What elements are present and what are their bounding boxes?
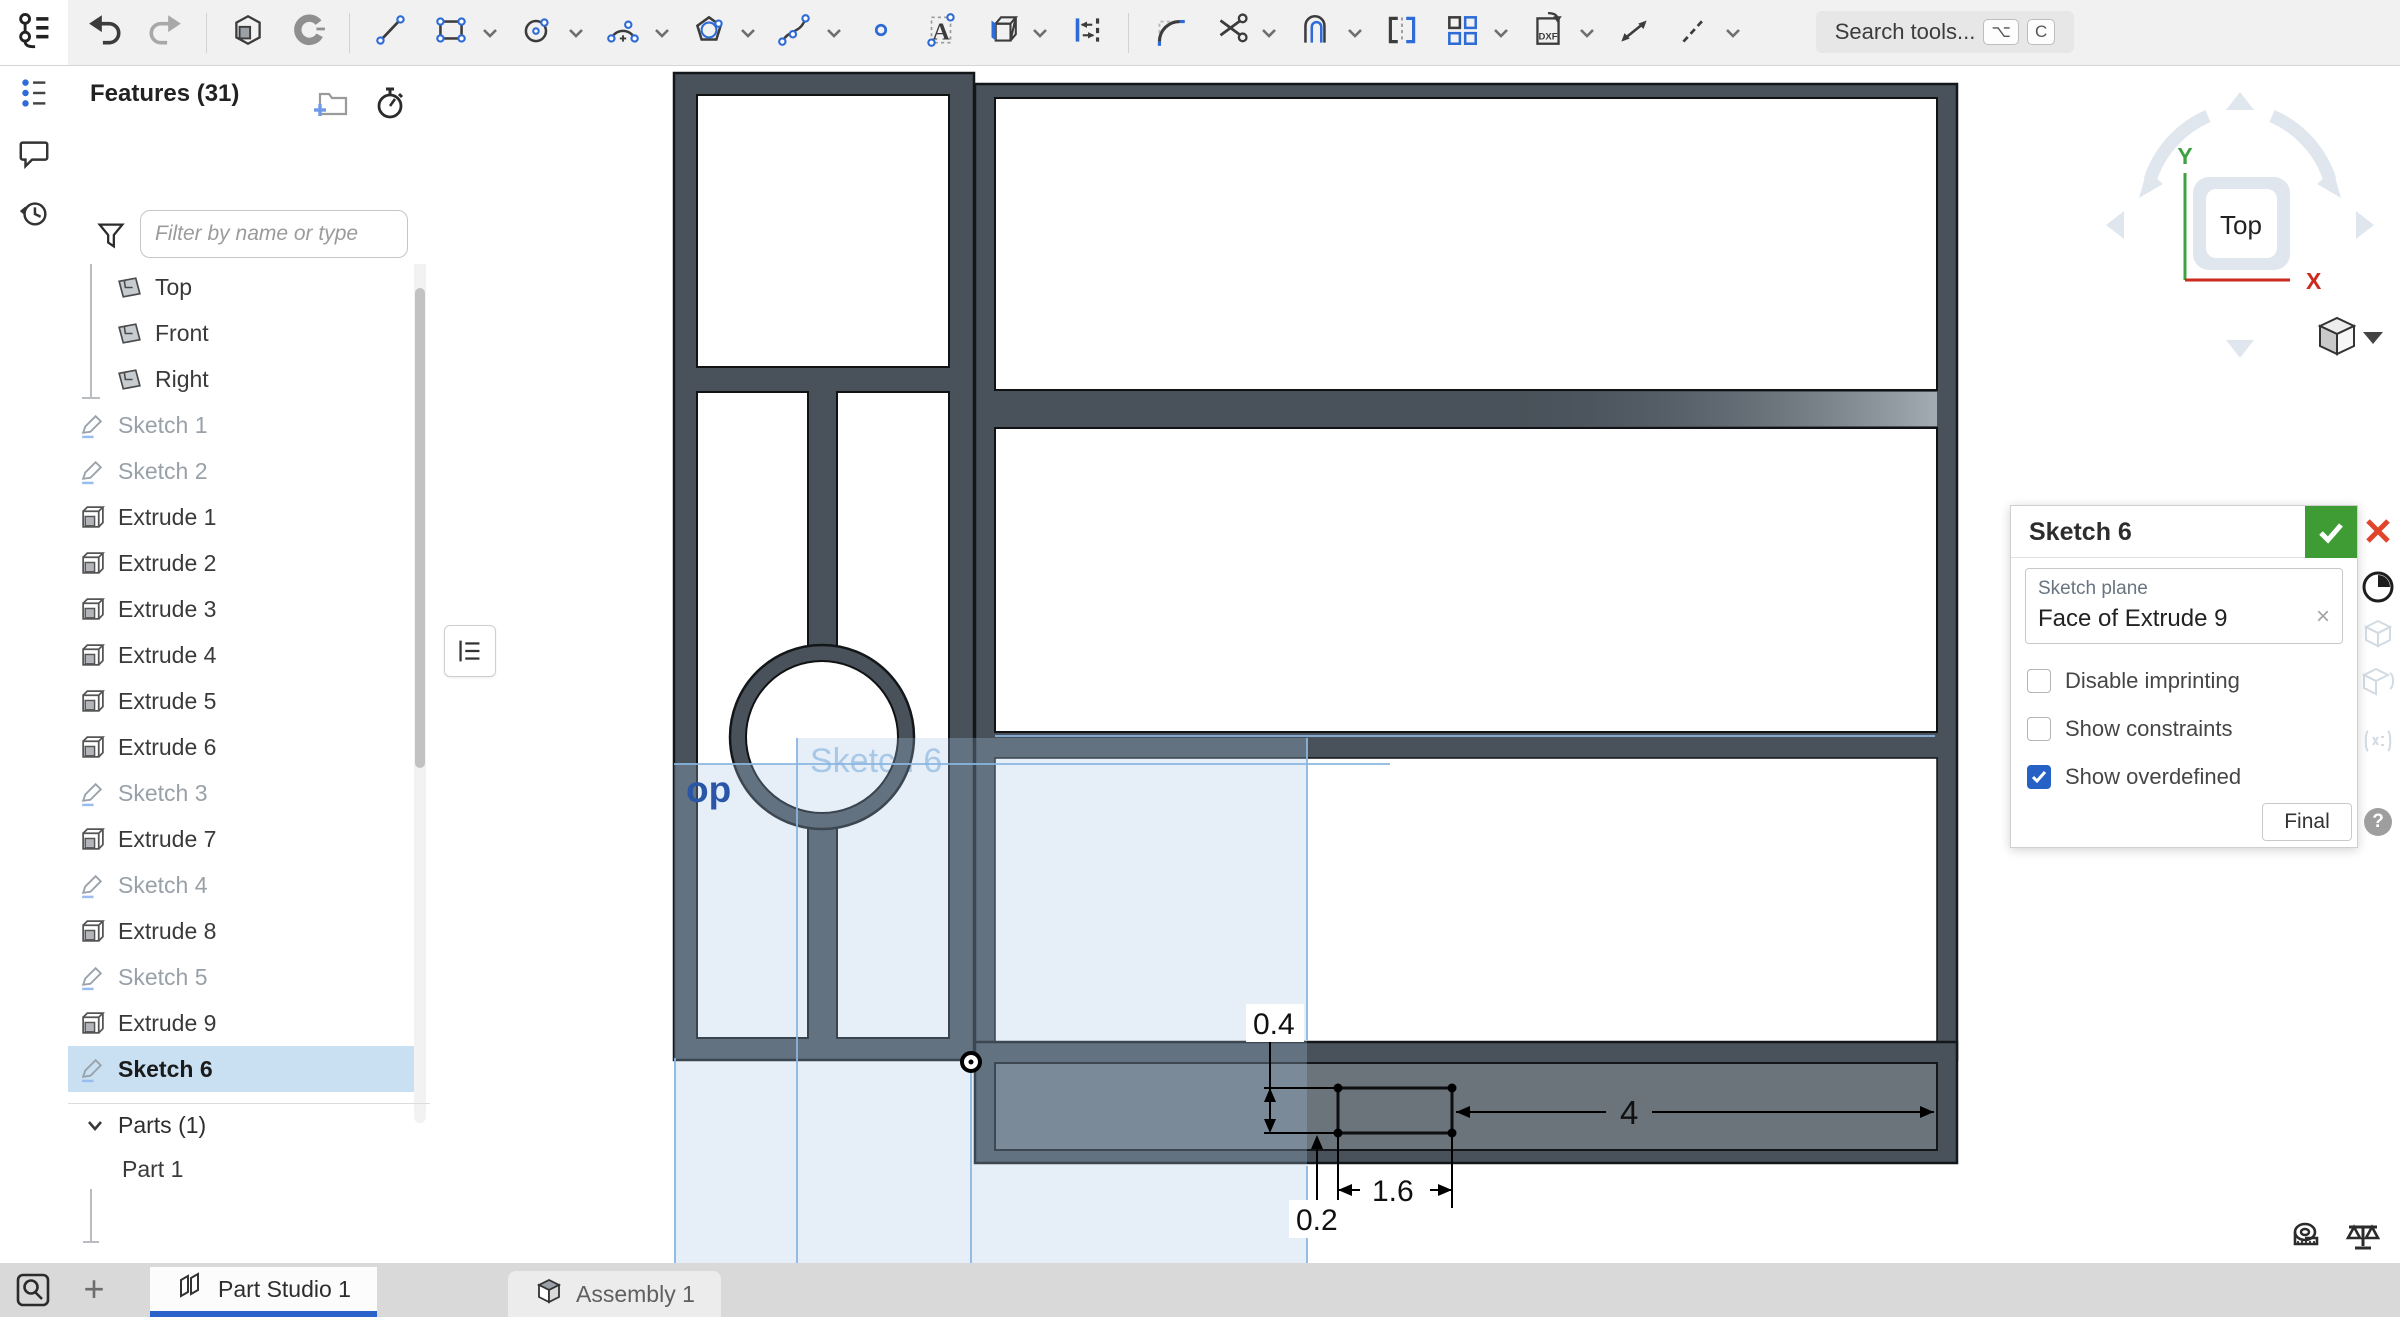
toolbar-extrude-button[interactable] (225, 9, 271, 57)
pattern-icon (1443, 11, 1481, 54)
toolbar-redo-button[interactable] (142, 9, 188, 57)
tab-search-button[interactable] (14, 1271, 52, 1314)
feature-tree-item-extrude-9[interactable]: Extrude 9 (68, 1000, 414, 1046)
comments-button[interactable] (0, 125, 68, 185)
feature-label: Extrude 1 (118, 504, 216, 531)
checkbox-icon[interactable] (2027, 717, 2051, 741)
feature-tree-item-sketch-1[interactable]: Sketch 1 (68, 402, 414, 448)
insert-icon (17, 76, 51, 115)
origin-marker[interactable] (962, 1053, 980, 1071)
feature-tree-item-extrude-7[interactable]: Extrude 7 (68, 816, 414, 862)
filter-funnel-icon (94, 218, 128, 257)
final-button[interactable]: Final (2262, 803, 2352, 841)
sketch-dialog: Sketch 6 Sketch plane Face of Extrude 9 … (2010, 505, 2358, 848)
features-title: Features (31) (68, 80, 239, 108)
clear-selection-icon[interactable]: × (2316, 603, 2330, 631)
part-item-part-1[interactable]: Part 1 (68, 1146, 430, 1192)
toolbar-pattern-button[interactable] (1439, 9, 1485, 57)
extrude-icon (78, 549, 106, 577)
sketch-plane-value: Face of Extrude 9 (2038, 605, 2227, 633)
help-button[interactable]: ? (2364, 808, 2392, 836)
scale-balance-icon (2343, 1217, 2383, 1257)
toolbar-corner-rectangle-button[interactable] (428, 9, 474, 57)
x-axis-label: X (2306, 268, 2322, 294)
checkbox-label: Disable imprinting (2065, 668, 2240, 694)
fx-icon (2360, 723, 2396, 759)
offset-entity-icon (1297, 11, 1335, 54)
line-icon (372, 11, 410, 54)
use-project-icon (982, 11, 1020, 54)
feature-label: Extrude 5 (118, 688, 216, 715)
chevron-down-icon (84, 1114, 106, 1136)
point-icon (862, 11, 900, 54)
toolbar-dxf-import-button[interactable]: DXF (1525, 9, 1571, 57)
new-folder-icon[interactable] (312, 85, 350, 126)
fillet-icon (1151, 11, 1189, 54)
view-cube-face-label[interactable]: Top (2220, 210, 2262, 240)
toolbar-use-project-button[interactable] (978, 9, 1024, 57)
tab-label: Assembly 1 (576, 1281, 695, 1308)
spline-icon (776, 11, 814, 54)
parts-list: Part 1 (68, 1146, 430, 1192)
feature-label: Extrude 4 (118, 642, 216, 669)
rollback-stopwatch-icon[interactable] (372, 85, 408, 126)
feature-tree-item-extrude-3[interactable]: Extrude 3 (68, 586, 414, 632)
confirm-button[interactable] (2305, 506, 2357, 558)
feature-label: Sketch 5 (118, 964, 208, 991)
feature-tree-item-extrude-6[interactable]: Extrude 6 (68, 724, 414, 770)
sketch-only-mode-button[interactable] (2358, 567, 2398, 607)
feature-tree-item-sketch-3[interactable]: Sketch 3 (68, 770, 414, 816)
toolbar-undo-button[interactable] (82, 9, 128, 57)
dxf-import-icon: DXF (1529, 11, 1567, 54)
sketch-icon (78, 871, 106, 899)
extrude-icon (229, 11, 267, 54)
part-studio-icon (176, 1271, 206, 1307)
toolbar-construction-dropdown[interactable] (1723, 9, 1743, 57)
mirror-icon (1383, 11, 1421, 54)
circle-icon (518, 11, 556, 54)
top-plane-label-clipped: op (686, 769, 731, 810)
plane-icon (115, 273, 143, 301)
sketch-feature-list-toggle[interactable] (444, 625, 496, 677)
history-clock-icon (17, 196, 51, 235)
option-key-badge: ⌥ (1983, 19, 2019, 45)
insert-button[interactable] (0, 65, 68, 125)
dimension-height[interactable]: 0.4 (1253, 1008, 1295, 1041)
rotate-cw-arrow[interactable] (2272, 116, 2330, 180)
text-icon: A (922, 11, 960, 54)
feature-tree-toggle-button[interactable] (0, 0, 68, 65)
toolbar-use-project-dropdown[interactable] (1030, 9, 1050, 57)
checkbox-label: Show constraints (2065, 716, 2233, 742)
viewport-measure-tools (2282, 1216, 2384, 1258)
extrude-icon (78, 1009, 106, 1037)
construction-icon (1675, 11, 1713, 54)
assembly-icon (534, 1276, 564, 1312)
checkbox-show-constraints[interactable]: Show constraints (2027, 714, 2233, 744)
cancel-button[interactable] (2358, 511, 2398, 551)
shaded-view-button[interactable] (2358, 613, 2398, 653)
extrude-icon (78, 687, 106, 715)
checkbox-show-overdefined[interactable]: Show overdefined (2027, 762, 2241, 792)
dialog-side-strip: ? (2356, 505, 2400, 850)
checkbox-icon[interactable] (2027, 669, 2051, 693)
corner-rectangle-icon (432, 11, 470, 54)
trim-icon (1211, 11, 1249, 54)
feature-label: Extrude 7 (118, 826, 216, 853)
cube-brace-icon (2360, 663, 2396, 699)
feature-label: Front (155, 320, 209, 347)
feature-label: Top (155, 274, 192, 301)
feature-list-panel: Features (31) Ori (68, 65, 430, 1263)
dimension-lower[interactable]: 0.2 (1296, 1204, 1338, 1237)
toolbar-separator (1128, 13, 1129, 53)
sketch-plane-label: Sketch plane (2038, 578, 2148, 600)
feature-label: Extrude 9 (118, 1010, 216, 1037)
sketch-icon (78, 1055, 106, 1083)
feature-label: Right (155, 366, 209, 393)
comment-bubble-icon (17, 136, 51, 175)
sketch-dialog-title: Sketch 6 (2029, 518, 2132, 547)
view-mode-chevron-icon[interactable] (2363, 332, 2383, 344)
redo-icon (146, 11, 184, 54)
toolbar-construction-button[interactable] (1671, 9, 1717, 57)
feature-label: Sketch 3 (118, 780, 208, 807)
section-view-button[interactable] (2358, 661, 2398, 701)
search-tools-button[interactable]: Search tools... ⌥ C (1816, 11, 2074, 53)
extrude-icon (78, 503, 106, 531)
dimension-right-offset[interactable]: 4 (1620, 1094, 1638, 1131)
toolbar-trim-button[interactable] (1207, 9, 1253, 57)
feature-tree-item-sketch-5[interactable]: Sketch 5 (68, 954, 414, 1000)
variables-button[interactable] (2358, 721, 2398, 761)
toolbar-text-button[interactable]: A (918, 9, 964, 57)
indent-guide-tick (83, 1241, 99, 1243)
feature-tree-item-right[interactable]: Right (68, 356, 414, 402)
mass-properties-button[interactable] (2342, 1216, 2384, 1258)
sketch-icon (78, 457, 106, 485)
toolbar-revolve-button[interactable] (285, 9, 331, 57)
plane-icon (115, 365, 143, 393)
filter-input[interactable] (140, 210, 408, 258)
toolbar-spline-button[interactable] (772, 9, 818, 57)
toolbar-offset-entity-button[interactable] (1293, 9, 1339, 57)
feature-tree: OriginTopFrontRightSketch 1Sketch 2Extru… (68, 218, 430, 1092)
indent-guide (90, 1189, 92, 1241)
c-key-badge: C (2027, 19, 2055, 45)
toolbar-corner-rectangle-dropdown[interactable] (480, 9, 500, 57)
pie-clock-icon (2360, 569, 2396, 605)
toolbar-dimension-button[interactable] (1611, 9, 1657, 57)
extrude-icon (78, 641, 106, 669)
feature-label: Sketch 2 (118, 458, 208, 485)
sketch-icon (78, 411, 106, 439)
feature-tree-item-front[interactable]: Front (68, 310, 414, 356)
feature-tree-item-extrude-2[interactable]: Extrude 2 (68, 540, 414, 586)
document-tab-part-studio-1[interactable]: Part Studio 1 (150, 1267, 377, 1317)
feature-tree-item-extrude-1[interactable]: Extrude 1 (68, 494, 414, 540)
toolbar-arc-button[interactable] (600, 9, 646, 57)
filter-row (68, 200, 430, 264)
feature-tree-item-sketch-4[interactable]: Sketch 4 (68, 862, 414, 908)
parts-section: Parts (1) Part 1 (68, 1103, 430, 1192)
toolbar-polygon-button[interactable] (686, 9, 732, 57)
revolve-icon (289, 11, 327, 54)
toolbar-trim-dropdown[interactable] (1259, 9, 1279, 57)
undo-icon (86, 11, 124, 54)
toolbar-mirror-button[interactable] (1379, 9, 1425, 57)
toolbar-fillet-button[interactable] (1147, 9, 1193, 57)
feature-tree-icon (14, 10, 54, 55)
sketch-icon (78, 963, 106, 991)
sketch-plane-field[interactable]: Sketch plane Face of Extrude 9 × (2025, 568, 2343, 644)
offset-dimension-icon (1068, 11, 1106, 54)
tree-scrollbar[interactable] (414, 223, 426, 1123)
dimension-width[interactable]: 1.6 (1372, 1175, 1414, 1208)
feature-tree-item-top[interactable]: Top (68, 264, 414, 310)
toolbar-polygon-dropdown[interactable] (738, 9, 758, 57)
view-mode-cube-button[interactable] (2320, 318, 2354, 354)
checkbox-disable-imprinting[interactable]: Disable imprinting (2027, 666, 2240, 696)
list-icon (453, 634, 487, 668)
svg-text:DXF: DXF (1539, 31, 1558, 42)
toolbar-dxf-import-dropdown[interactable] (1577, 9, 1597, 57)
tree-scrollbar-thumb[interactable] (415, 288, 425, 768)
left-icon-rail (0, 65, 68, 1263)
feature-label: Sketch 6 (118, 1056, 213, 1083)
tab-label: Part Studio 1 (218, 1276, 351, 1303)
add-tab-button[interactable]: + (72, 1265, 116, 1313)
feature-tree-item-extrude-4[interactable]: Extrude 4 (68, 632, 414, 678)
parts-header-label: Parts (1) (118, 1112, 206, 1139)
measure-button[interactable] (2282, 1216, 2324, 1258)
view-cube[interactable]: Top Y X (2095, 78, 2400, 378)
parts-header[interactable]: Parts (1) (68, 1104, 430, 1146)
toolbar-separator (349, 13, 350, 53)
history-button[interactable] (0, 185, 68, 245)
plane-icon (115, 319, 143, 347)
toolbar-offset-entity-dropdown[interactable] (1345, 9, 1365, 57)
search-icon (14, 1271, 52, 1309)
search-tools-label: Search tools... (1835, 19, 1976, 45)
arc-icon (604, 11, 642, 54)
toolbar-spline-dropdown[interactable] (824, 9, 844, 57)
toolbar-circle-button[interactable] (514, 9, 560, 57)
toolbar-circle-dropdown[interactable] (566, 9, 586, 57)
checkbox-label: Show overdefined (2065, 764, 2241, 790)
toolbar-offset-dimension-button[interactable] (1064, 9, 1110, 57)
sketch-icon (78, 779, 106, 807)
feature-label: Extrude 6 (118, 734, 216, 761)
extrude-icon (78, 595, 106, 623)
feature-tree-item-sketch-2[interactable]: Sketch 2 (68, 448, 414, 494)
toolbar-line-button[interactable] (368, 9, 414, 57)
feature-label: Extrude 3 (118, 596, 216, 623)
checkbox-checked-icon[interactable] (2027, 765, 2051, 789)
toolbar-separator (206, 13, 207, 53)
tape-measure-icon (2283, 1217, 2323, 1257)
feature-label: Extrude 2 (118, 550, 216, 577)
toolbar-pattern-dropdown[interactable] (1491, 9, 1511, 57)
feature-tree-item-sketch-6[interactable]: Sketch 6 (68, 1046, 414, 1092)
sketch-dialog-header: Sketch 6 (2011, 506, 2357, 558)
cube-grid-icon (2360, 615, 2396, 651)
extrude-icon (78, 825, 106, 853)
y-axis-label: Y (2177, 143, 2192, 169)
feature-label: Sketch 4 (118, 872, 208, 899)
toolbar-point-button[interactable] (858, 9, 904, 57)
feature-label: Extrude 8 (118, 918, 216, 945)
toolbar-arc-dropdown[interactable] (652, 9, 672, 57)
document-tab-assembly-1[interactable]: Assembly 1 (508, 1271, 721, 1317)
extrude-icon (78, 733, 106, 761)
close-icon (2364, 517, 2392, 545)
dimension-icon (1615, 11, 1653, 54)
extrude-icon (78, 917, 106, 945)
feature-label: Sketch 1 (118, 412, 208, 439)
polygon-icon (690, 11, 728, 54)
feature-tree-item-extrude-5[interactable]: Extrude 5 (68, 678, 414, 724)
document-tab-bar: + Part Studio 1Assembly 1 (0, 1263, 2400, 1317)
feature-tree-item-extrude-8[interactable]: Extrude 8 (68, 908, 414, 954)
sketch-region-tint (674, 738, 1307, 1263)
sketch-tools-group: ADXF (68, 9, 1743, 57)
top-toolbar: ADXF Search tools... ⌥ C (0, 0, 2400, 66)
checkmark-icon (2316, 517, 2346, 547)
